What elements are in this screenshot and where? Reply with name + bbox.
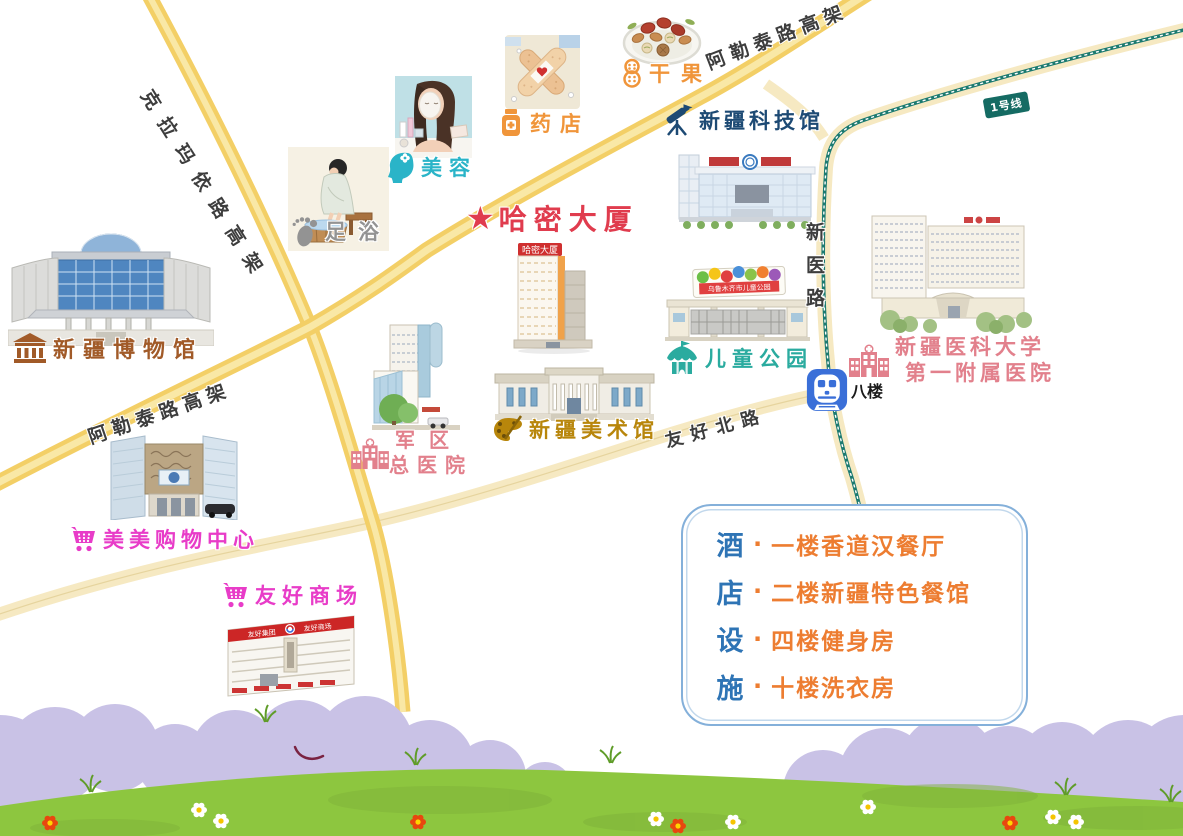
hotel-facilities-legend: 酒 · 一楼香道汉餐厅 店 · 二楼新疆特色餐馆 设 · 四楼健身房 施 · 十… xyxy=(681,504,1028,726)
nuts-label: 干果 xyxy=(620,58,713,88)
legend-row: 设 · 四楼健身房 xyxy=(713,619,1016,658)
hotel-roof-sign: 哈密大厦 xyxy=(522,244,558,256)
museum-icon xyxy=(12,332,48,364)
metro-station-icon xyxy=(806,368,848,412)
pharmacy-illustration xyxy=(505,35,580,109)
beauty-illustration xyxy=(395,76,472,158)
museum-illustration xyxy=(8,222,214,346)
hotel-area-map: 哈密大厦 乌鲁木齐市儿童公园 xyxy=(0,0,1183,836)
cart-icon xyxy=(220,580,250,610)
telescope-icon xyxy=(660,104,694,136)
military-hospital-icon xyxy=(350,436,390,470)
hotel-label: ★ 哈密大厦 xyxy=(466,198,639,238)
road-label-xinyi: 新医路 xyxy=(801,222,828,321)
beauty-label-text: 美容 xyxy=(421,152,477,182)
legend-title-char: 设 xyxy=(713,619,747,658)
hotel-label-text: 哈密大厦 xyxy=(499,198,639,238)
legend-item-text: 十楼洗衣房 xyxy=(771,669,896,703)
legend-title-char: 施 xyxy=(713,667,747,706)
footprint-icon xyxy=(292,214,320,248)
footbath-label-text: 足浴 xyxy=(325,216,391,246)
tent-icon xyxy=(664,340,700,376)
palette-icon xyxy=(492,414,524,444)
beauty-head-icon xyxy=(386,150,416,184)
legend-bullet: · xyxy=(753,625,762,653)
hotel-illustration: 哈密大厦 xyxy=(512,241,596,355)
science-label: 新疆科技馆 xyxy=(660,104,824,136)
museum-label-text: 新疆博物馆 xyxy=(53,332,203,364)
youhao-mall-illustration: 友好集团 友好商场 xyxy=(224,610,358,702)
med-univ-hospital-illustration xyxy=(866,200,1036,334)
legend-title-char: 店 xyxy=(713,572,747,611)
nuts-label-text: 干果 xyxy=(649,58,713,88)
legend-row: 店 · 二楼新疆特色餐馆 xyxy=(713,572,1016,611)
legend-bullet: · xyxy=(753,672,762,700)
legend-title-char: 酒 xyxy=(713,524,747,563)
meimei-mall-label-text: 美美购物中心 xyxy=(103,524,259,554)
metro-station-label: 八楼 xyxy=(851,378,883,402)
med-univ-hospital-line1: 新疆医科大学 xyxy=(895,334,1055,360)
cart-icon xyxy=(68,524,98,554)
legend-item-text: 一楼香道汉餐厅 xyxy=(771,527,946,561)
meimei-mall-label: 美美购物中心 xyxy=(68,524,259,554)
park-label: 儿童公园 xyxy=(664,340,813,376)
legend-item-text: 二楼新疆特色餐馆 xyxy=(771,574,971,608)
science-label-text: 新疆科技馆 xyxy=(699,105,824,135)
medicine-bottle-icon xyxy=(497,108,525,138)
art-museum-label-text: 新疆美术馆 xyxy=(529,414,659,444)
metro-station-balou: 八楼 xyxy=(806,368,883,412)
meimei-mall-illustration xyxy=(107,432,241,520)
legend-bullet: · xyxy=(753,577,762,605)
med-univ-hospital-line2: 第一附属医院 xyxy=(905,360,1055,386)
peanut-icon xyxy=(620,58,644,88)
art-museum-label: 新疆美术馆 xyxy=(492,414,659,444)
military-hospital-illustration xyxy=(366,321,466,433)
youhao-mall-label: 友好商场 xyxy=(220,580,363,610)
park-label-text: 儿童公园 xyxy=(705,343,813,373)
beauty-label: 美容 xyxy=(386,150,477,184)
museum-label: 新疆博物馆 xyxy=(12,332,203,364)
youhao-mall-label-text: 友好商场 xyxy=(255,580,363,610)
military-hospital-label: 军区 总医院 xyxy=(350,428,473,478)
pharmacy-label: 药店 xyxy=(497,108,590,138)
legend-row: 酒 · 一楼香道汉餐厅 xyxy=(713,524,1016,563)
star-icon: ★ xyxy=(466,202,495,234)
legend-bullet: · xyxy=(753,530,762,558)
legend-item-text: 四楼健身房 xyxy=(771,622,896,656)
military-hospital-line2: 总医院 xyxy=(389,453,473,478)
footbath-label: 足浴 xyxy=(292,214,391,248)
park-gate-illustration: 乌鲁木齐市儿童公园 xyxy=(663,266,812,342)
pharmacy-label-text: 药店 xyxy=(530,108,590,138)
legend-row: 施 · 十楼洗衣房 xyxy=(713,667,1016,706)
science-illustration xyxy=(673,147,819,231)
military-hospital-line1: 军区 xyxy=(395,428,473,453)
